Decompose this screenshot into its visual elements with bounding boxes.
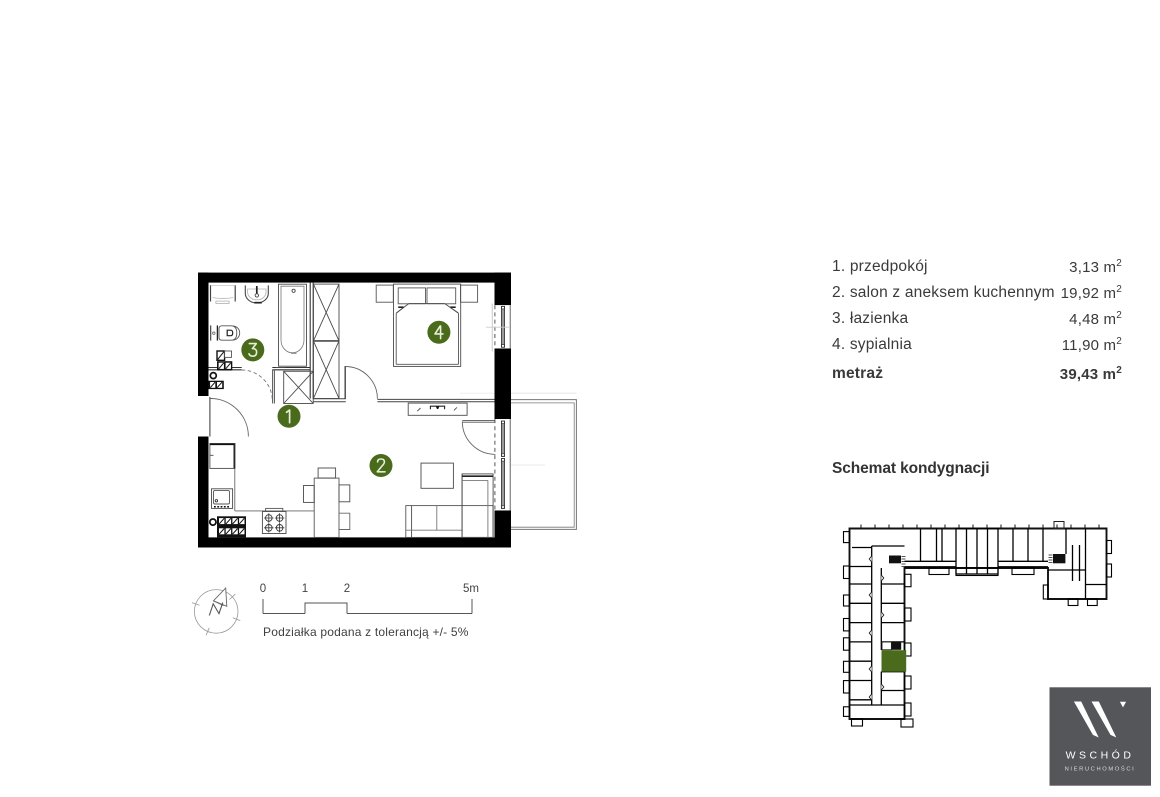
svg-text:NIERUCHOMOŚCI: NIERUCHOMOŚCI: [1065, 765, 1136, 773]
svg-text:2: 2: [344, 583, 350, 595]
svg-text:1: 1: [302, 583, 308, 595]
svg-text:5m: 5m: [463, 583, 479, 595]
svg-text:0: 0: [260, 583, 266, 595]
svg-text:WSCHÓD: WSCHÓD: [1066, 749, 1135, 762]
